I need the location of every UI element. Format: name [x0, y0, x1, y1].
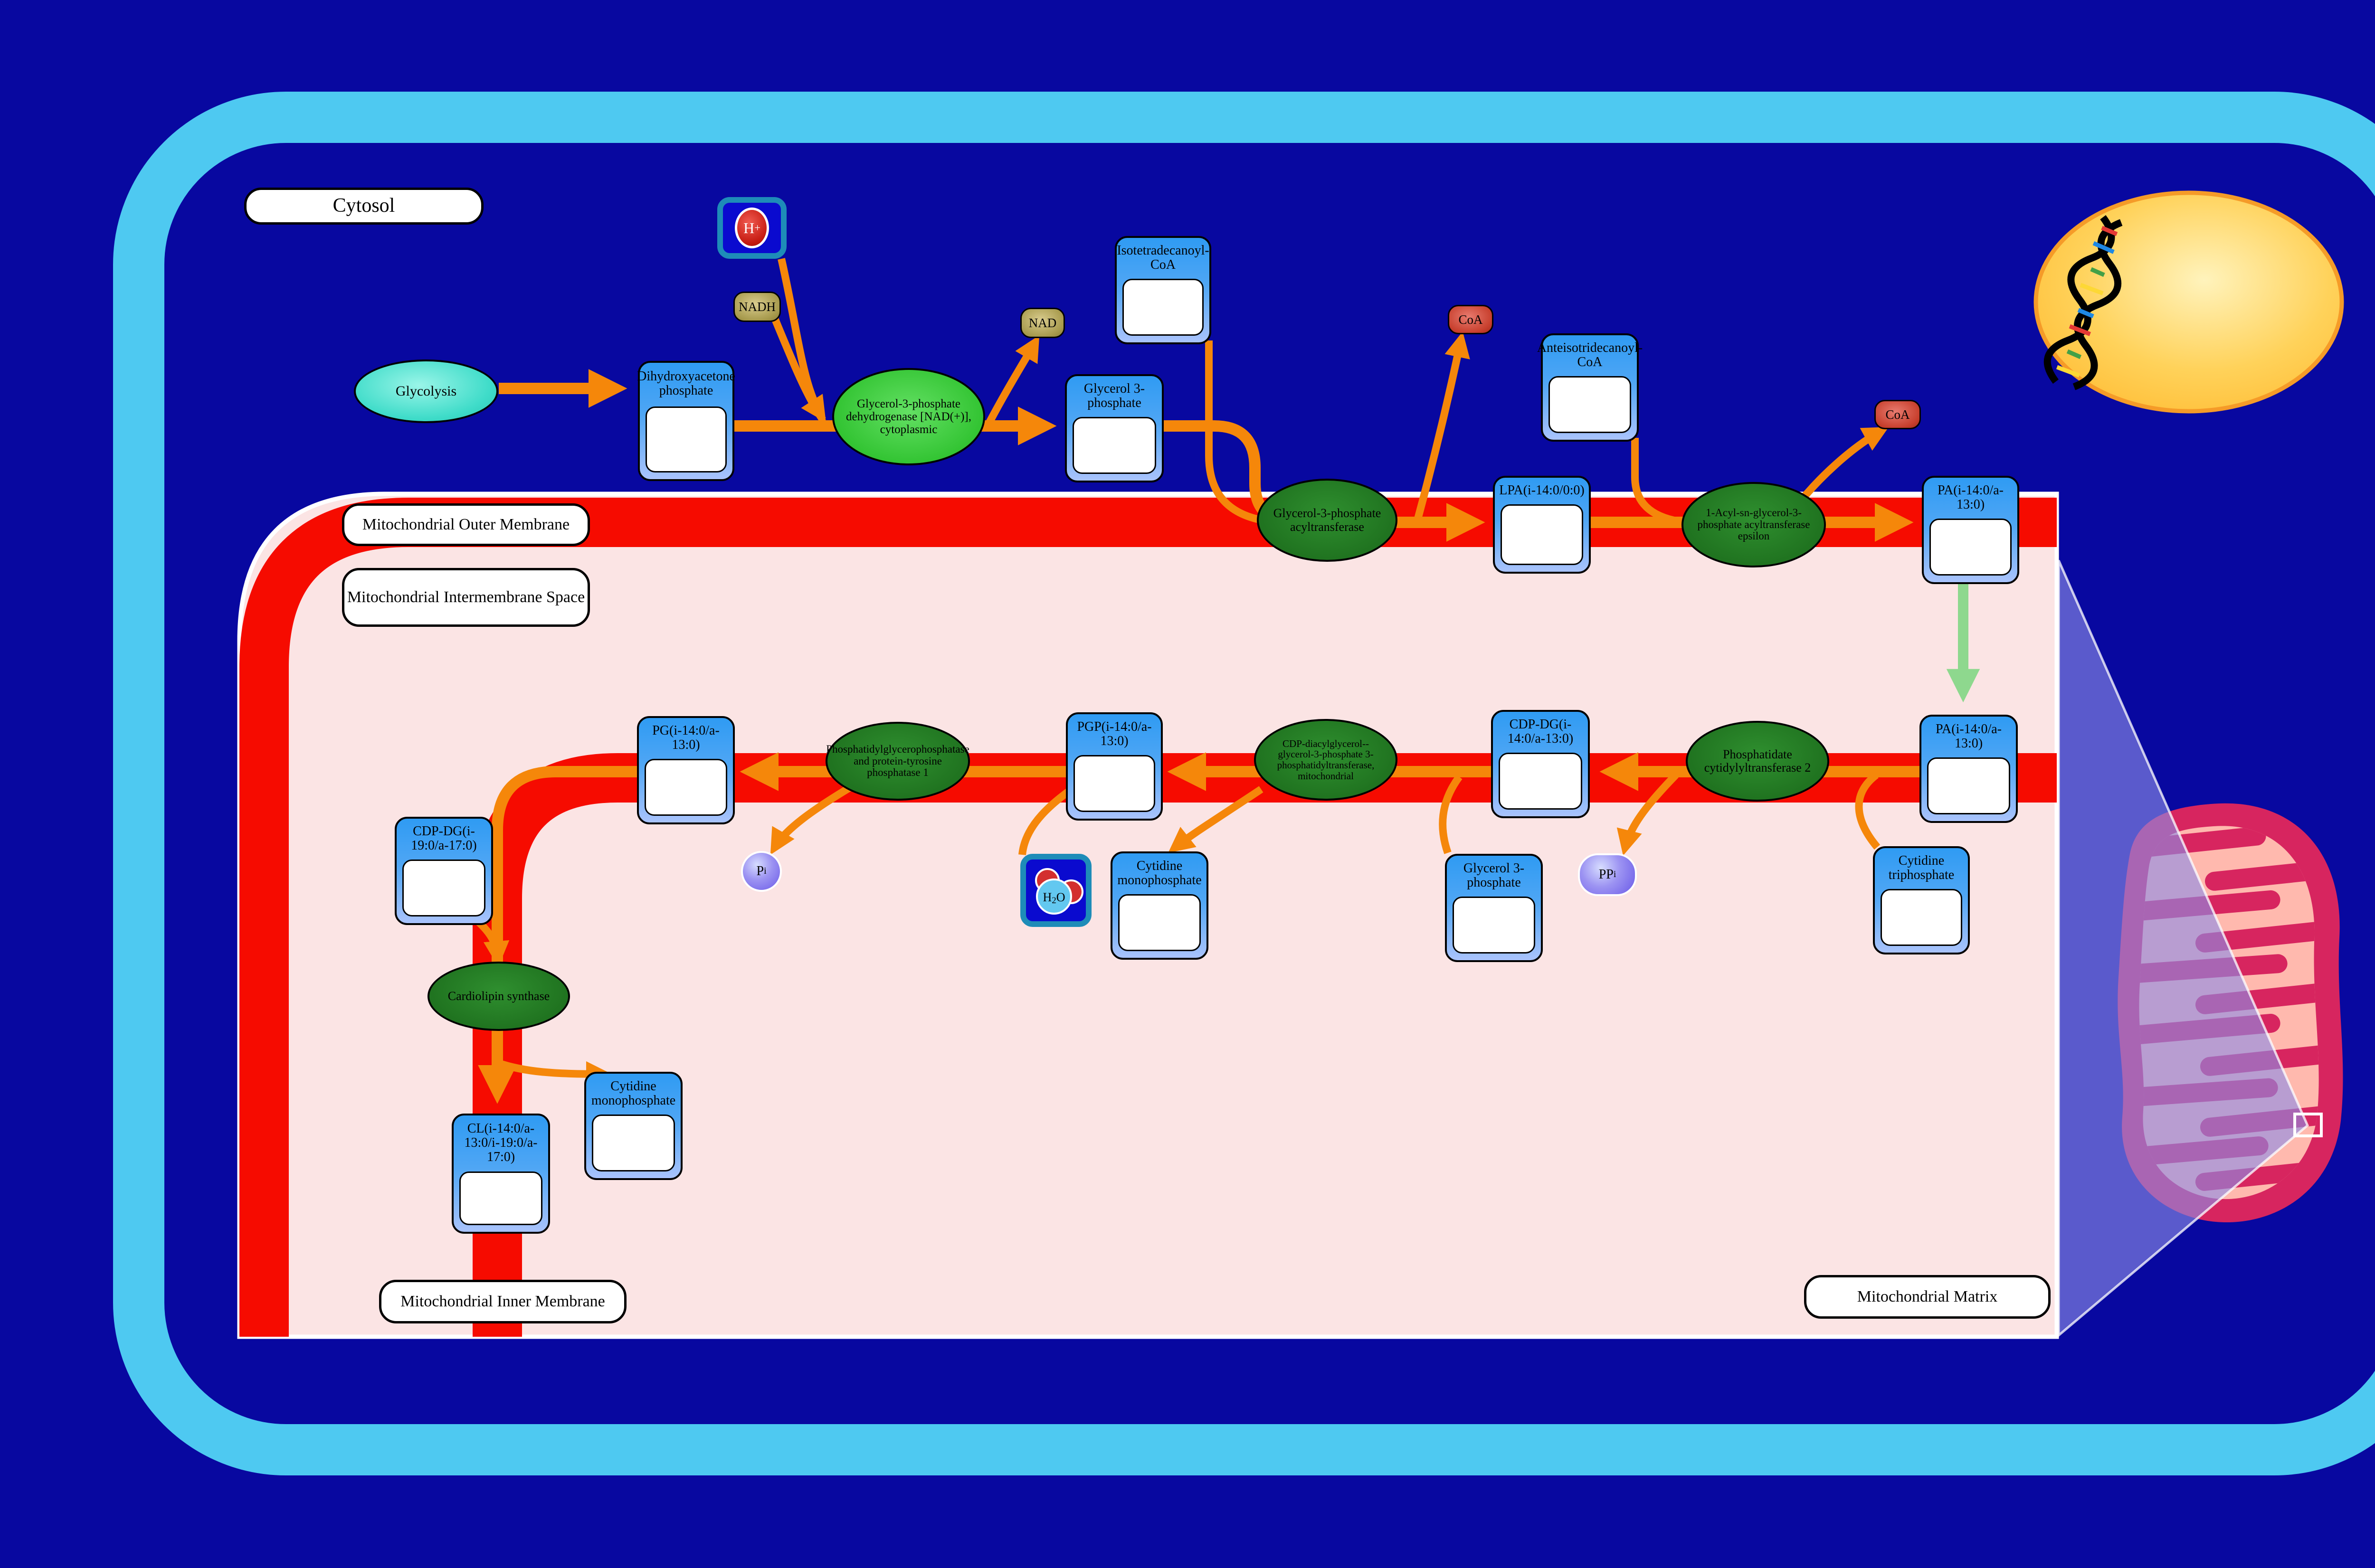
label-outer-membrane: Mitochondrial Outer Membrane — [342, 503, 590, 546]
diagram-background — [0, 0, 2375, 1568]
cofactor-nad[interactable]: NAD — [1020, 308, 1065, 338]
proton-chip[interactable]: H+ — [717, 197, 787, 259]
metabolite-isotetradecanoyl-coa[interactable]: Isotetradecanoyl-CoA — [1115, 236, 1211, 344]
water-molecule-icon: H2O — [1027, 860, 1084, 920]
pyrophosphate-ppi[interactable]: PPi — [1578, 853, 1637, 896]
metabolite-lpa[interactable]: LPA(i-14:0/0:0) — [1493, 476, 1591, 574]
metabolite-pgp[interactable]: PGP(i-14:0/a-13:0) — [1066, 712, 1163, 821]
metabolite-cl[interactable]: CL(i-14:0/a-13:0/i-19:0/a-17:0) — [452, 1114, 550, 1234]
nucleus[interactable] — [2036, 193, 2342, 411]
metabolite-cmp-inner[interactable]: Cytidine monophosphate — [584, 1072, 683, 1180]
enzyme-pgp-phosphatase[interactable]: Phosphatidylglycerophosphatase and prote… — [826, 722, 970, 801]
water-chip[interactable]: H2O — [1020, 854, 1092, 927]
enzyme-cls[interactable]: Cardiolipin synthase — [427, 962, 570, 1031]
cofactor-nadh[interactable]: NADH — [733, 292, 781, 322]
enzyme-cdp-dg-synthase[interactable]: CDP-diacylglycerol--glycerol-3-phosphate… — [1254, 719, 1397, 801]
enzyme-agpat-epsilon[interactable]: 1-Acyl-sn-glycerol-3-phosphate acyltrans… — [1681, 482, 1826, 567]
metabolite-ctp[interactable]: Cytidine triphosphate — [1873, 846, 1970, 954]
phosphate-pi[interactable]: Pi — [741, 851, 782, 892]
metabolite-pa-outer[interactable]: PA(i-14:0/a-13:0) — [1922, 476, 2019, 584]
label-matrix: Mitochondrial Matrix — [1804, 1275, 2051, 1319]
metabolite-g3p-matrix[interactable]: Glycerol 3-phosphate — [1445, 854, 1543, 962]
label-cytosol: Cytosol — [244, 188, 484, 225]
metabolite-cdp-dg-19[interactable]: CDP-DG(i-19:0/a-17:0) — [395, 817, 493, 925]
metabolite-g3p-cytosol[interactable]: Glycerol 3-phosphate — [1065, 374, 1164, 482]
process-glycolysis[interactable]: Glycolysis — [354, 359, 498, 423]
metabolite-dhap[interactable]: Dihydroxyacetone phosphate — [638, 361, 734, 481]
pathway-diagram: Cytosol Mitochondrial Outer Membrane Mit… — [0, 0, 2375, 1568]
cofactor-coa-2[interactable]: CoA — [1874, 400, 1921, 429]
proton-icon: H+ — [735, 208, 769, 248]
metabolite-pa-inner[interactable]: PA(i-14:0/a-13:0) — [1919, 715, 2018, 823]
metabolite-anteisotridecanoyl-coa[interactable]: Anteisotridecanoyl-CoA — [1541, 333, 1639, 442]
metabolite-pg[interactable]: PG(i-14:0/a-13:0) — [637, 716, 735, 824]
label-inner-membrane: Mitochondrial Inner Membrane — [379, 1280, 627, 1323]
metabolite-cmp-matrix[interactable]: Cytidine monophosphate — [1111, 851, 1208, 960]
enzyme-gpat[interactable]: Glycerol-3-phosphate acyltransferase — [1257, 479, 1397, 562]
metabolite-cdp-dg-14[interactable]: CDP-DG(i-14:0/a-13:0) — [1491, 710, 1590, 818]
label-intermembrane-space: Mitochondrial Intermembrane Space — [342, 568, 590, 627]
enzyme-gpd1[interactable]: Glycerol-3-phosphate dehydrogenase [NAD(… — [832, 368, 985, 465]
enzyme-pct2[interactable]: Phosphatidate cytidylyltransferase 2 — [1686, 721, 1829, 802]
cofactor-coa-1[interactable]: CoA — [1448, 305, 1493, 334]
